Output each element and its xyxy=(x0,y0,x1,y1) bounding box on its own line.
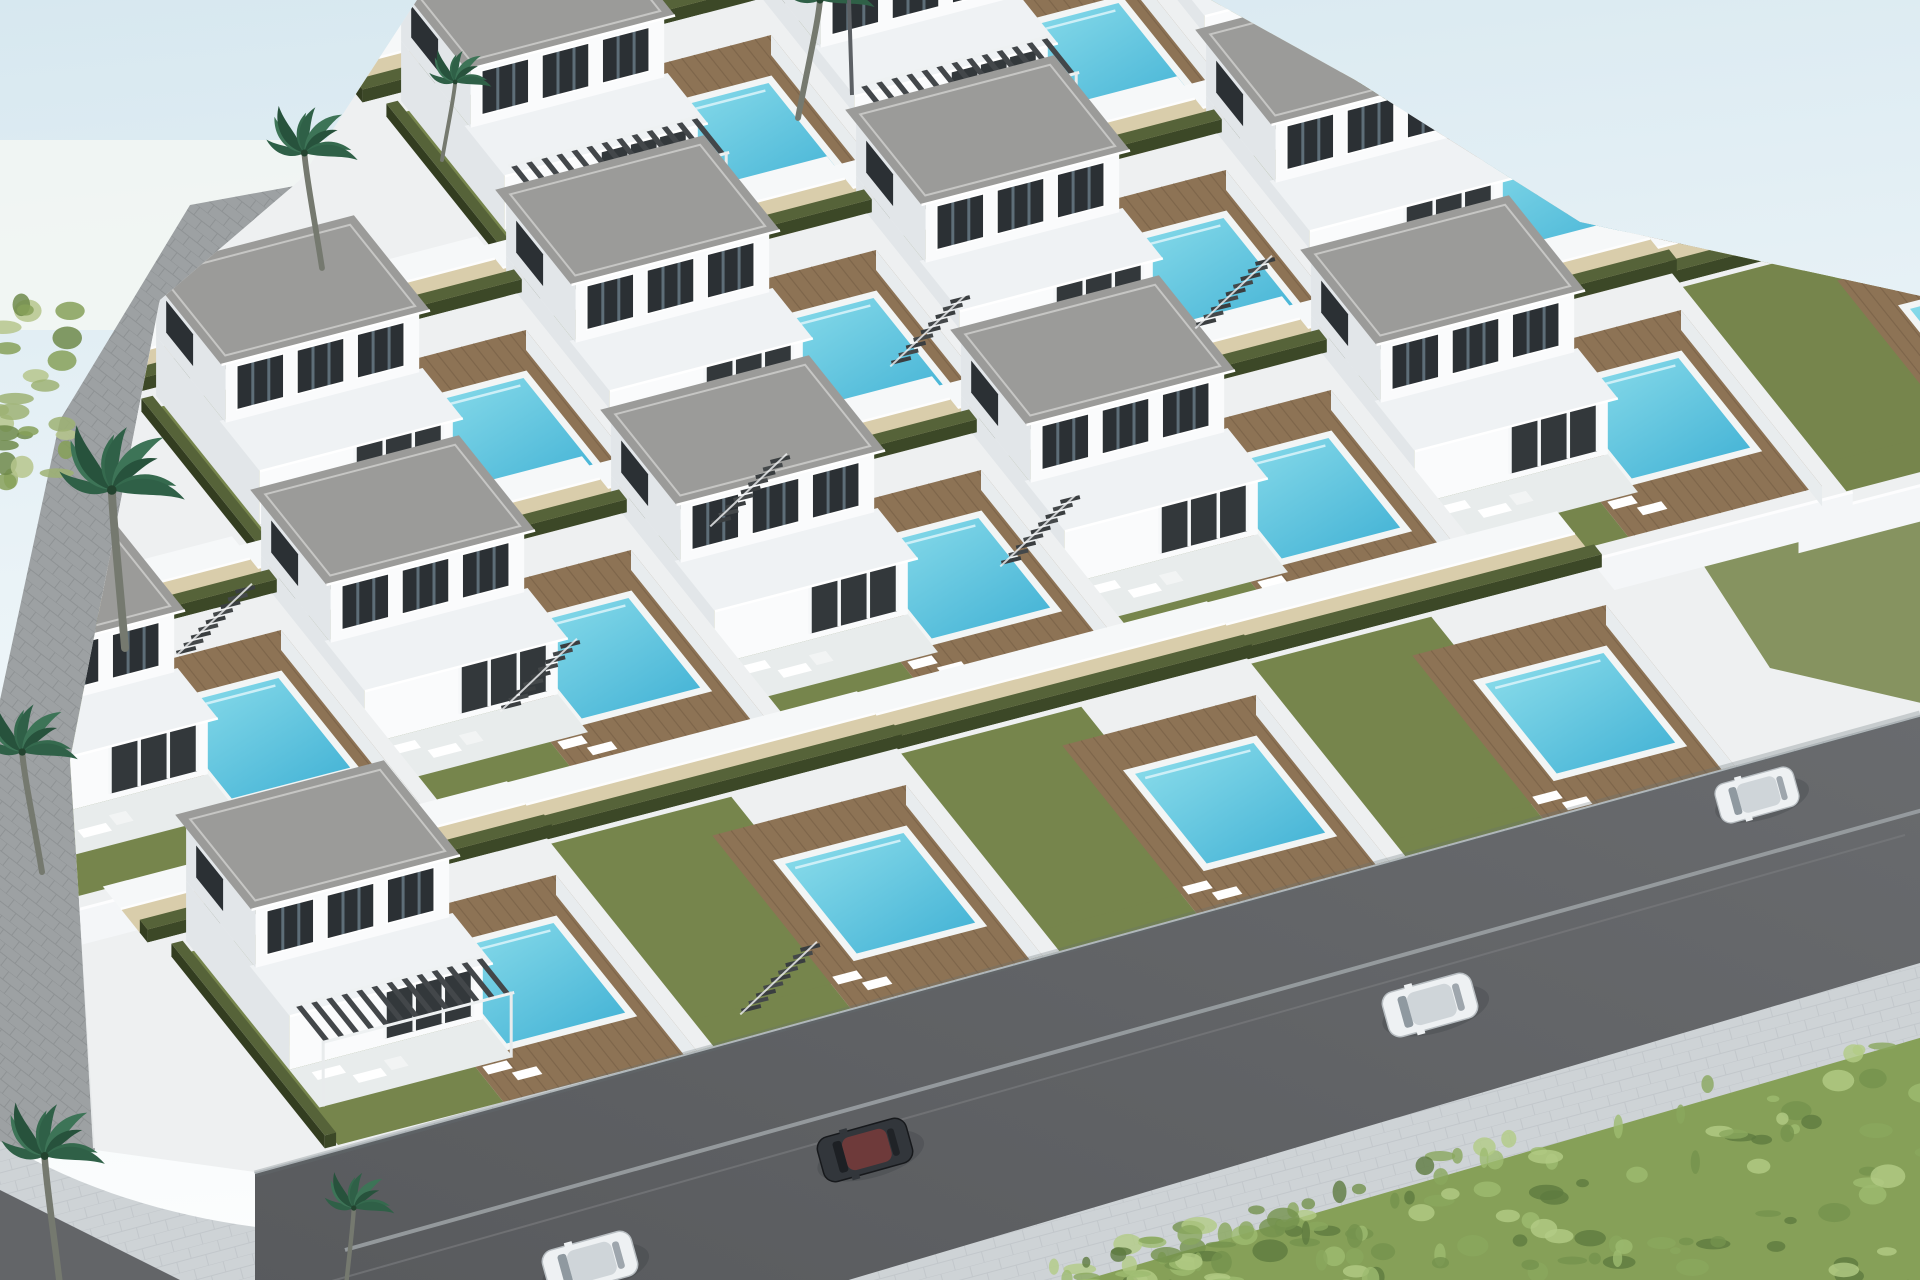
render-canvas xyxy=(0,0,1920,1280)
aerial-villa-development-render xyxy=(0,0,1920,1280)
